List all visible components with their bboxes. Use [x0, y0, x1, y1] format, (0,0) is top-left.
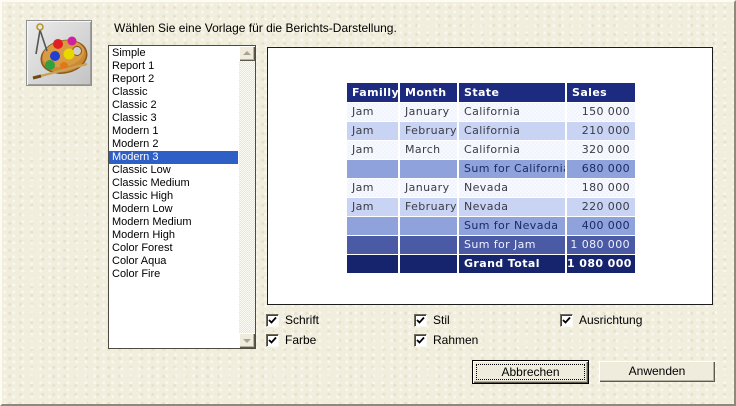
table-cell: Nevada [459, 179, 565, 197]
table-cell: California [459, 103, 565, 121]
report-preview-table: Familly Month State Sales Jam January Ca… [347, 83, 635, 273]
list-item[interactable]: Classic 2 [109, 99, 238, 112]
checkbox-farbe[interactable]: Farbe [266, 333, 316, 347]
table-header-cell: Sales [567, 83, 635, 102]
table-cell: 220 000 [567, 198, 635, 216]
table-cell [347, 217, 398, 235]
table-cell: Jam [347, 179, 398, 197]
checkbox-schrift[interactable]: Schrift [266, 313, 319, 327]
table-cell: Jam [347, 122, 398, 140]
table-cell [400, 160, 457, 178]
table-cell [400, 255, 457, 273]
checkbox-stil[interactable]: Stil [414, 313, 450, 327]
table-cell: Jam [347, 141, 398, 159]
check-icon [268, 316, 277, 325]
table-header-cell: Familly [347, 83, 398, 102]
table-cell [400, 236, 457, 254]
list-item[interactable]: Modern 1 [109, 125, 238, 138]
checkbox-box[interactable] [266, 314, 279, 327]
checkbox-box[interactable] [560, 314, 573, 327]
table-cell: 1 080 000 [567, 255, 635, 273]
template-listbox[interactable]: Simple Report 1 Report 2 Classic Classic… [108, 45, 256, 349]
arrow-up-icon [243, 51, 251, 55]
list-item[interactable]: Modern 2 [109, 138, 238, 151]
table-header-cell: Month [400, 83, 457, 102]
table-cell: February [400, 122, 457, 140]
table-cell: California [459, 122, 565, 140]
list-item[interactable]: Color Forest [109, 242, 238, 255]
table-cell: California [459, 141, 565, 159]
check-icon [416, 336, 425, 345]
table-cell [400, 217, 457, 235]
list-item[interactable]: Classic [109, 86, 238, 99]
report-preview-panel: Familly Month State Sales Jam January Ca… [267, 47, 713, 305]
table-cell: March [400, 141, 457, 159]
table-cell: February [400, 198, 457, 216]
listbox-scrollbar[interactable] [239, 46, 255, 348]
list-item[interactable]: Report 1 [109, 60, 238, 73]
table-cell [347, 160, 398, 178]
cancel-button[interactable]: Abbrechen [472, 360, 589, 384]
list-item-selected[interactable]: Modern 3 [109, 151, 238, 164]
list-item[interactable]: Color Aqua [109, 255, 238, 268]
table-cell: Jam [347, 103, 398, 121]
checkbox-label: Stil [433, 313, 450, 327]
list-item[interactable]: Classic 3 [109, 112, 238, 125]
table-header-cell: State [459, 83, 565, 102]
list-item[interactable]: Classic Low [109, 164, 238, 177]
checkbox-box[interactable] [414, 334, 427, 347]
table-cell: 1 080 000 [567, 236, 635, 254]
table-cell [347, 236, 398, 254]
style-selection-dialog: Wählen Sie eine Vorlage für die Berichts… [0, 0, 736, 406]
list-item[interactable]: Classic High [109, 190, 238, 203]
table-cell: 680 000 [567, 160, 635, 178]
list-item[interactable]: Classic Medium [109, 177, 238, 190]
checkbox-label: Rahmen [433, 333, 478, 347]
checkbox-label: Farbe [285, 333, 316, 347]
template-list-items: Simple Report 1 Report 2 Classic Classic… [109, 47, 238, 348]
dialog-instruction: Wählen Sie eine Vorlage für die Berichts… [114, 21, 674, 35]
list-item[interactable]: Color Fire [109, 268, 238, 281]
list-item[interactable]: Simple [109, 47, 238, 60]
table-cell: Nevada [459, 198, 565, 216]
check-icon [268, 336, 277, 345]
scroll-up-button[interactable] [239, 46, 255, 61]
scroll-down-button[interactable] [239, 333, 255, 348]
check-icon [562, 316, 571, 325]
table-cell: Sum for California [459, 160, 565, 178]
checkbox-label: Schrift [285, 313, 319, 327]
table-cell: 150 000 [567, 103, 635, 121]
palette-icon [26, 20, 92, 86]
table-cell: January [400, 179, 457, 197]
table-cell: Jam [347, 198, 398, 216]
checkbox-rahmen[interactable]: Rahmen [414, 333, 478, 347]
table-cell: Grand Total [459, 255, 565, 273]
apply-button[interactable]: Anwenden [599, 361, 715, 382]
arrow-down-icon [243, 339, 251, 343]
table-cell: January [400, 103, 457, 121]
checkbox-label: Ausrichtung [579, 313, 642, 327]
list-item[interactable]: Modern High [109, 229, 238, 242]
table-cell: 180 000 [567, 179, 635, 197]
check-icon [416, 316, 425, 325]
checkbox-box[interactable] [266, 334, 279, 347]
table-cell: Sum for Jam [459, 236, 565, 254]
checkbox-box[interactable] [414, 314, 427, 327]
table-cell: Sum for Nevada [459, 217, 565, 235]
focus-rectangle [476, 364, 585, 380]
list-item[interactable]: Modern Low [109, 203, 238, 216]
list-item[interactable]: Modern Medium [109, 216, 238, 229]
table-cell [347, 255, 398, 273]
table-cell: 400 000 [567, 217, 635, 235]
table-cell: 320 000 [567, 141, 635, 159]
table-cell: 210 000 [567, 122, 635, 140]
list-item[interactable]: Report 2 [109, 73, 238, 86]
checkbox-ausrichtung[interactable]: Ausrichtung [560, 313, 642, 327]
